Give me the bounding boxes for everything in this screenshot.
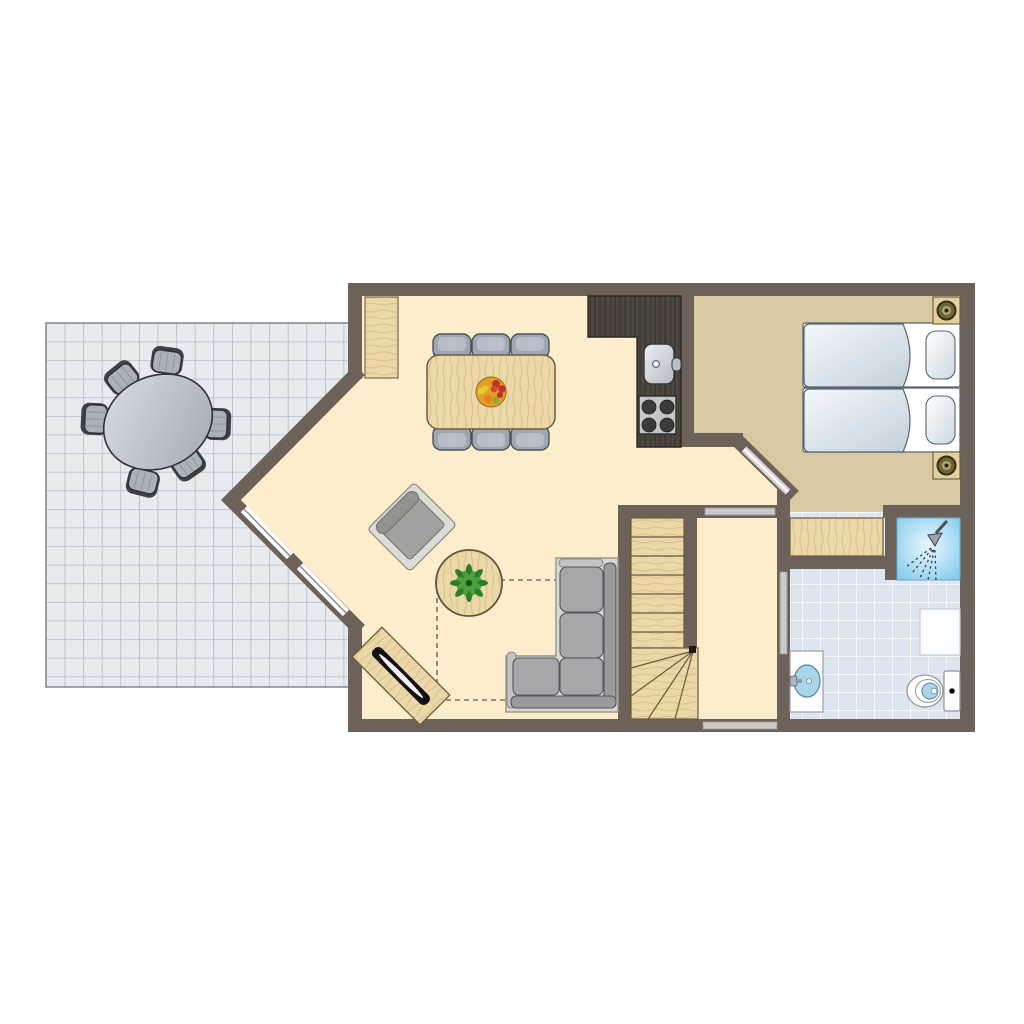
toilet [907, 671, 960, 711]
toilet-flush-button [949, 688, 955, 694]
nightstand [933, 452, 960, 479]
dining-set [427, 334, 555, 450]
basin-tap [790, 676, 797, 686]
coffee-table [436, 550, 502, 616]
wall-bottom [348, 719, 975, 732]
basin-drain [806, 678, 811, 683]
sideboard [365, 297, 398, 378]
wall-top [348, 283, 975, 296]
duvet [804, 324, 910, 387]
wall-left-lower [348, 624, 362, 724]
hallway-floor [694, 512, 784, 719]
duvet [804, 389, 910, 452]
sink-tap [672, 358, 681, 371]
pillow [926, 331, 955, 379]
floor-plan-canvas [0, 0, 1024, 1024]
sink-drain [653, 361, 660, 368]
shower [897, 518, 960, 580]
wall-bedroom-left [681, 296, 694, 440]
hallway-door [705, 508, 775, 515]
terrace-chair [149, 345, 184, 376]
pillow [926, 396, 955, 444]
stairs-newel-post [689, 646, 696, 653]
floor-plan-page [0, 0, 1024, 1024]
wall-stairs-left [618, 505, 631, 719]
entrance-door [703, 722, 777, 729]
bathroom-shelf [920, 609, 960, 655]
nightstand [933, 297, 960, 324]
fruit-bowl [476, 377, 506, 407]
wall-stairs-right [684, 512, 697, 648]
wall-left-upper [348, 283, 362, 379]
wall-right [960, 283, 975, 732]
wall-below-wardrobe [777, 556, 897, 569]
plant [450, 564, 488, 602]
washbasin [790, 651, 823, 712]
wardrobe [790, 518, 883, 556]
sofa-armrest [559, 559, 603, 567]
bathroom-door [780, 572, 787, 654]
